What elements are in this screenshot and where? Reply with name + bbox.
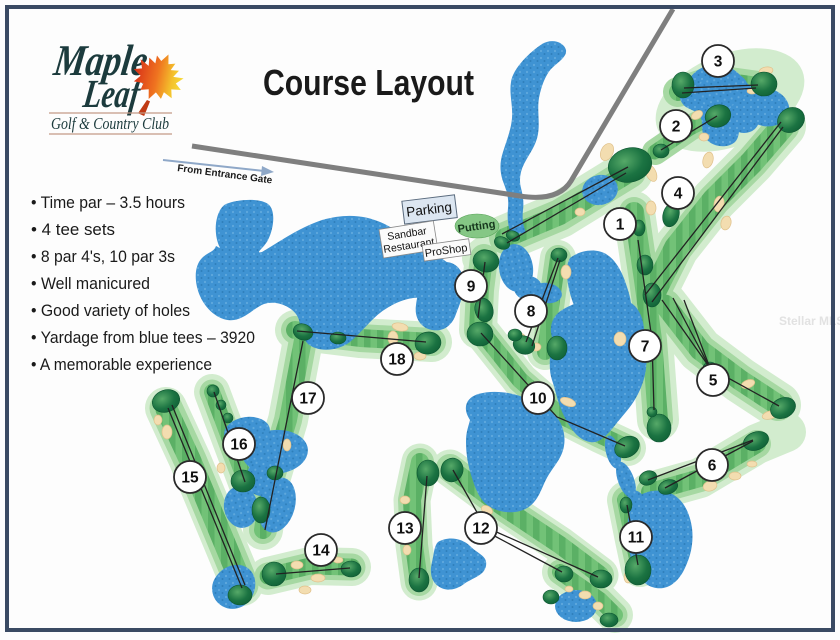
- svg-text:14: 14: [312, 543, 330, 560]
- svg-text:• 8 par 4's, 10 par 3s: • 8 par 4's, 10 par 3s: [31, 247, 175, 266]
- svg-text:8: 8: [527, 304, 536, 321]
- svg-text:• Time par – 3.5 hours: • Time par – 3.5 hours: [31, 193, 185, 212]
- svg-text:17: 17: [299, 391, 316, 408]
- svg-text:• 4 tee sets: • 4 tee sets: [31, 220, 115, 239]
- svg-text:16: 16: [230, 437, 248, 454]
- svg-text:4: 4: [674, 186, 683, 203]
- svg-text:15: 15: [181, 470, 199, 487]
- svg-text:9: 9: [467, 279, 476, 296]
- svg-text:12: 12: [472, 521, 489, 538]
- svg-text:10: 10: [529, 391, 546, 408]
- svg-text:• Yardage from blue tees – 392: • Yardage from blue tees – 3920: [31, 328, 255, 347]
- svg-text:5: 5: [709, 373, 718, 390]
- svg-text:2: 2: [672, 119, 681, 136]
- svg-text:7: 7: [641, 339, 650, 356]
- svg-text:3: 3: [714, 54, 723, 71]
- svg-text:Golf & Country Club: Golf & Country Club: [51, 114, 169, 133]
- svg-text:• A memorable experience: • A memorable experience: [31, 355, 212, 374]
- svg-text:Stellar MLS: Stellar MLS: [779, 314, 840, 328]
- svg-text:Leaf: Leaf: [80, 71, 146, 116]
- svg-text:Course Layout: Course Layout: [263, 62, 474, 103]
- svg-text:1: 1: [616, 217, 625, 234]
- svg-text:18: 18: [388, 352, 406, 369]
- svg-text:• Good variety of holes: • Good variety of holes: [31, 301, 190, 320]
- svg-text:13: 13: [396, 521, 414, 538]
- svg-text:• Well manicured: • Well manicured: [31, 274, 150, 293]
- svg-text:6: 6: [708, 458, 717, 475]
- svg-text:11: 11: [628, 530, 645, 547]
